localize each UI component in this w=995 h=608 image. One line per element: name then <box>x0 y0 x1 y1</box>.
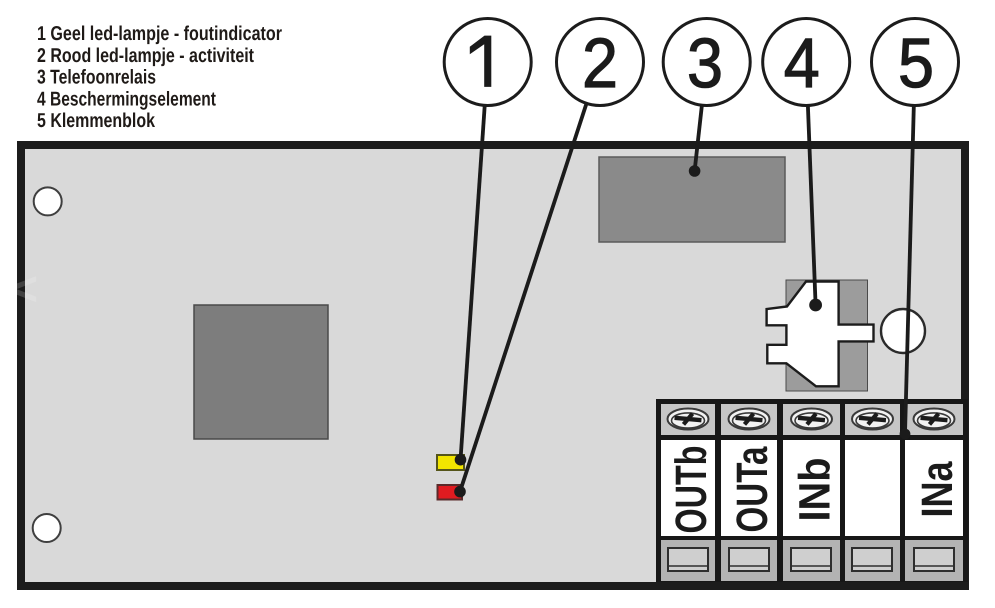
svg-text:1 Geel led-lampje - foutindica: 1 Geel led-lampje - foutindicator <box>37 23 282 45</box>
svg-text:OUTb: OUTb <box>667 446 716 534</box>
svg-text:2 Rood led-lampje - activiteit: 2 Rood led-lampje - activiteit <box>37 45 254 67</box>
svg-text:INb: INb <box>791 458 840 522</box>
svg-text:<: < <box>10 263 38 316</box>
svg-text:4: 4 <box>784 24 820 102</box>
svg-text:5: 5 <box>898 24 934 102</box>
svg-text:INa: INa <box>913 461 962 517</box>
svg-text:3 Telefoonrelais: 3 Telefoonrelais <box>37 67 156 89</box>
svg-text:3: 3 <box>687 24 723 102</box>
svg-text:5 Klemmenblok: 5 Klemmenblok <box>37 110 156 132</box>
svg-text:2: 2 <box>582 24 618 102</box>
svg-text:4 Beschermingselement: 4 Beschermingselement <box>37 89 216 111</box>
svg-text:OUTa: OUTa <box>728 446 777 532</box>
